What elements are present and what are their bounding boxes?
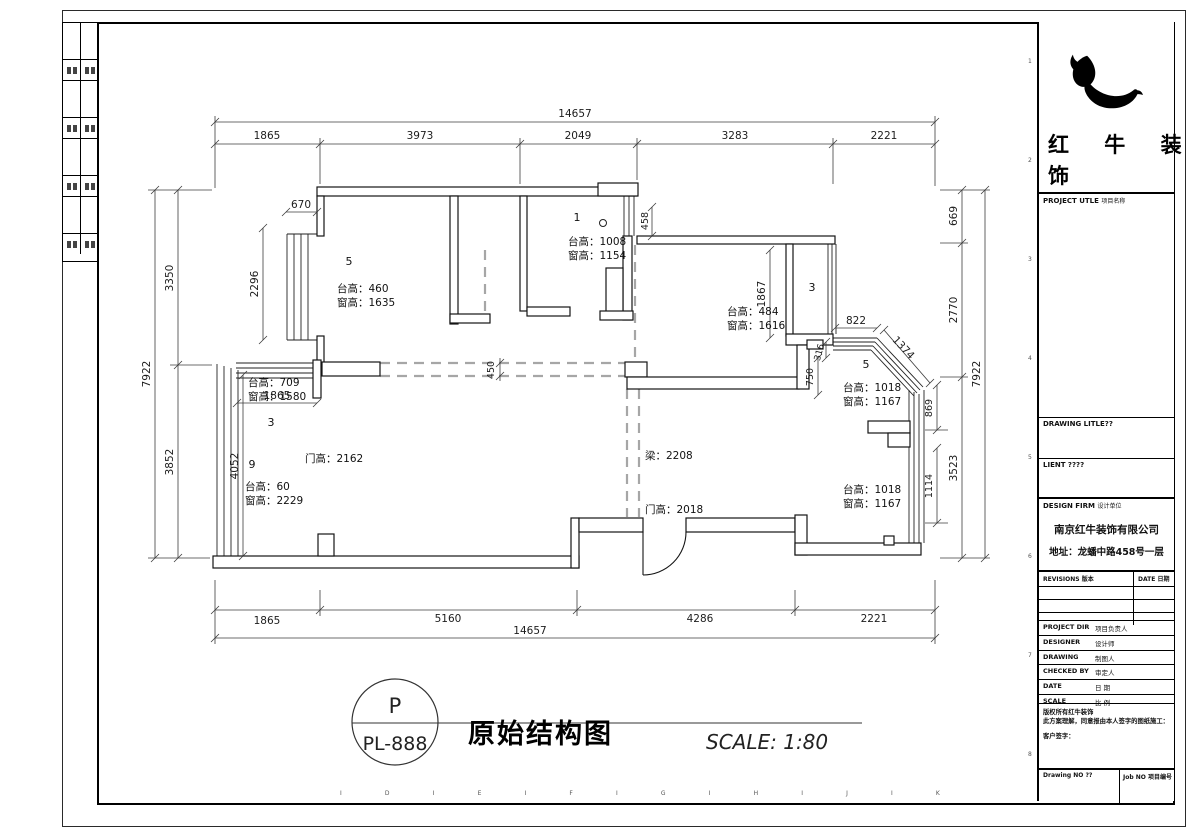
drawing-row: DRAWING制图人	[1039, 650, 1174, 665]
design-firm-header: DESIGN FIRM 设计单位	[1039, 499, 1174, 510]
dim-right-total: 7922	[971, 361, 983, 388]
bath-number: 1	[574, 211, 581, 224]
living-door-height: 门高：2162	[305, 452, 363, 465]
drawing-no: Drawing NO ??	[1039, 770, 1120, 803]
bay-r-sill: 台高：1018	[843, 381, 901, 394]
room-tl-sill: 台高：460	[337, 282, 389, 295]
floor-plan-canvas: 14657 1865 3973 2049 3283 2221 1865 5160…	[0, 0, 1200, 827]
bath-window: 窗高：1154	[568, 249, 627, 262]
room3-number: 3	[809, 281, 816, 294]
beam-dashed-lines	[380, 245, 639, 517]
bath-sill: 台高：1008	[568, 235, 626, 248]
balcony-sill: 台高：709	[248, 376, 300, 389]
dim-bottom-total: 14657	[513, 625, 546, 637]
drawing-title-header: DRAWING LITLE??	[1039, 418, 1174, 428]
bedroom-window: 窗高：1616	[727, 319, 786, 332]
dim-bottom-4: 2221	[861, 613, 888, 625]
drawing-title: 原始结构图	[468, 718, 613, 750]
dim-left-bottom: 3852	[164, 449, 176, 476]
dim-bay-tl-width: 670	[291, 199, 311, 211]
brand-name: 红 牛 装 饰	[1039, 130, 1183, 192]
dim-right-top: 669	[948, 206, 960, 226]
living-window: 窗高：2229	[245, 494, 303, 507]
dim-right-mid: 2770	[948, 297, 960, 324]
beam-label: 梁：2208	[645, 449, 693, 462]
date-row: DATE日 期	[1039, 679, 1174, 694]
dim-beam-width: 450	[486, 361, 497, 379]
revision-row	[1039, 600, 1174, 613]
dim-top-5: 2221	[871, 130, 898, 142]
job-no: Job NO 项目编号	[1120, 770, 1174, 803]
dim-win-r-lower: 1114	[924, 474, 935, 498]
dim-top-4: 3283	[722, 130, 749, 142]
dim-bedroom-height: 1867	[756, 281, 768, 308]
dim-top-1: 1865	[254, 130, 281, 142]
win-br-sill: 台高：1018	[843, 483, 901, 496]
dim-top-total: 14657	[558, 108, 591, 120]
dim-bottom-1: 1865	[254, 615, 281, 627]
bubble-letter: P	[389, 694, 402, 718]
dim-top-2: 3973	[407, 130, 434, 142]
entry-door	[643, 532, 686, 575]
room-tl-window: 窗高：1635	[337, 296, 395, 309]
dim-left-total: 7922	[141, 361, 153, 388]
client-header: LIENT ????	[1039, 459, 1174, 469]
dim-bay-r-drop: 750	[805, 368, 816, 386]
drawing-scale: SCALE: 1:80	[706, 730, 828, 754]
revision-row	[1039, 587, 1174, 600]
redniu-logo-icon	[1061, 50, 1156, 128]
balcony-window: 窗高：1580	[248, 390, 306, 403]
dim-balcony-height: 4052	[229, 453, 241, 480]
bay-r-window: 窗高：1167	[843, 395, 901, 408]
dim-top-3: 2049	[565, 130, 592, 142]
dim-bottom-2: 5160	[435, 613, 462, 625]
living-number: 9	[249, 458, 256, 471]
revisions-header-row: REVISIONS 版本 DATE 日期	[1039, 572, 1174, 587]
living-sill: 台高：60	[245, 480, 290, 493]
dim-right-bottom: 3523	[948, 455, 960, 482]
dim-bay-tl-height: 2296	[249, 270, 261, 297]
footer-title-area: P PL-888 原始结构图 SCALE: 1:80	[352, 679, 862, 765]
project-title-header: PROJECT UTLE 项目名称	[1039, 194, 1174, 205]
win-br-window: 窗高：1167	[843, 497, 901, 510]
copyright-note: 版权所有红牛装饰 此方案理解，同意报由本人签字的图纸施工： 客户签字：	[1039, 704, 1174, 741]
firm-name: 南京红牛装饰有限公司	[1039, 522, 1174, 537]
drawing-number-row: Drawing NO ?? Job NO 项目编号	[1039, 768, 1174, 803]
drawing-sheet: IDIEIFIGIHIJIK 12345678	[0, 0, 1200, 827]
checked-by-row: CHECKED BY审定人	[1039, 664, 1174, 679]
entry-door-height: 门高：2018	[645, 503, 703, 516]
bubble-code: PL-888	[363, 733, 428, 755]
title-block: 红 牛 装 饰 PROJECT UTLE 项目名称 DRAWING LITLE?…	[1037, 22, 1174, 801]
dim-bay-r-diag: 1374	[890, 334, 917, 362]
room-tl-number: 5	[346, 255, 353, 268]
project-dir-row: PROJECT DIR项目负责人	[1039, 620, 1174, 635]
bedroom-sill: 台高：484	[727, 305, 779, 318]
dim-win-mid: 458	[640, 212, 651, 230]
bay-r-number: 5	[863, 358, 870, 371]
balcony-number: 3	[268, 416, 275, 429]
dim-bay-r-top: 822	[846, 315, 866, 327]
firm-address: 地址：龙蟠中路458号一层	[1039, 544, 1174, 558]
dim-win-r-upper: 869	[924, 399, 935, 417]
floor-drain-icon	[600, 220, 607, 227]
designer-row: DESIGNER设计师	[1039, 635, 1174, 650]
dim-bottom-3: 4286	[687, 613, 714, 625]
dim-left-top: 3350	[164, 265, 176, 292]
